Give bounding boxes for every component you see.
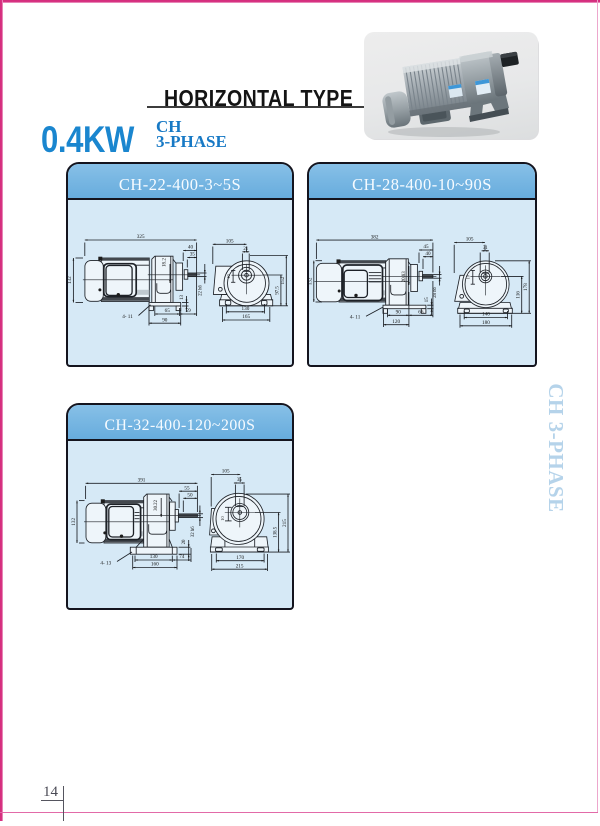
svg-text:40: 40	[188, 245, 194, 251]
svg-text:132: 132	[71, 518, 77, 526]
svg-text:132: 132	[67, 276, 73, 284]
svg-text:45: 45	[423, 244, 429, 250]
svg-text:32 h6: 32 h6	[191, 526, 196, 537]
svg-text:391: 391	[138, 478, 146, 484]
svg-text:138.5: 138.5	[273, 526, 278, 537]
svg-text:382: 382	[371, 234, 379, 240]
svg-text:132: 132	[308, 277, 314, 285]
svg-text:30.22: 30.22	[154, 499, 159, 510]
svg-text:130: 130	[150, 554, 158, 560]
svg-text:4- 11: 4- 11	[350, 315, 361, 321]
svg-text:10: 10	[465, 275, 470, 279]
svg-text:28 h6: 28 h6	[433, 287, 438, 298]
svg-text:10: 10	[226, 274, 231, 278]
svg-text:140: 140	[482, 312, 490, 318]
svg-text:116: 116	[516, 291, 522, 299]
svg-text:59: 59	[186, 308, 192, 314]
svg-text:97.5: 97.5	[276, 286, 281, 295]
svg-text:31: 31	[483, 246, 488, 251]
svg-text:215: 215	[282, 519, 288, 527]
svg-text:180: 180	[482, 320, 490, 326]
svg-text:160: 160	[151, 562, 159, 568]
svg-text:35: 35	[190, 252, 196, 258]
svg-text:165: 165	[242, 314, 250, 320]
svg-text:105: 105	[226, 239, 234, 245]
svg-text:18.2: 18.2	[162, 258, 168, 267]
svg-text:90: 90	[396, 310, 402, 316]
svg-text:215: 215	[236, 563, 244, 569]
svg-text:22 h6: 22 h6	[198, 285, 203, 296]
svg-text:20.83: 20.83	[402, 271, 407, 282]
svg-text:170: 170	[236, 555, 244, 561]
svg-text:20: 20	[182, 539, 187, 544]
svg-text:325: 325	[137, 234, 145, 240]
svg-text:35: 35	[237, 478, 242, 483]
svg-text:40: 40	[425, 251, 431, 257]
svg-text:66: 66	[418, 310, 424, 316]
svg-text:13: 13	[180, 295, 185, 300]
svg-text:65: 65	[165, 308, 171, 314]
svg-text:50: 50	[187, 493, 193, 499]
svg-text:21: 21	[243, 247, 248, 252]
svg-text:15: 15	[425, 297, 430, 302]
svg-text:120: 120	[392, 319, 400, 325]
svg-text:90: 90	[162, 317, 168, 323]
svg-text:105: 105	[466, 237, 474, 243]
svg-text:4- 13: 4- 13	[100, 561, 111, 567]
svg-text:105: 105	[222, 469, 230, 475]
svg-text:178: 178	[523, 283, 529, 291]
svg-text:74: 74	[179, 554, 185, 560]
svg-text:130: 130	[242, 306, 250, 312]
svg-text:55: 55	[184, 485, 190, 491]
svg-text:4- 11: 4- 11	[122, 314, 133, 320]
